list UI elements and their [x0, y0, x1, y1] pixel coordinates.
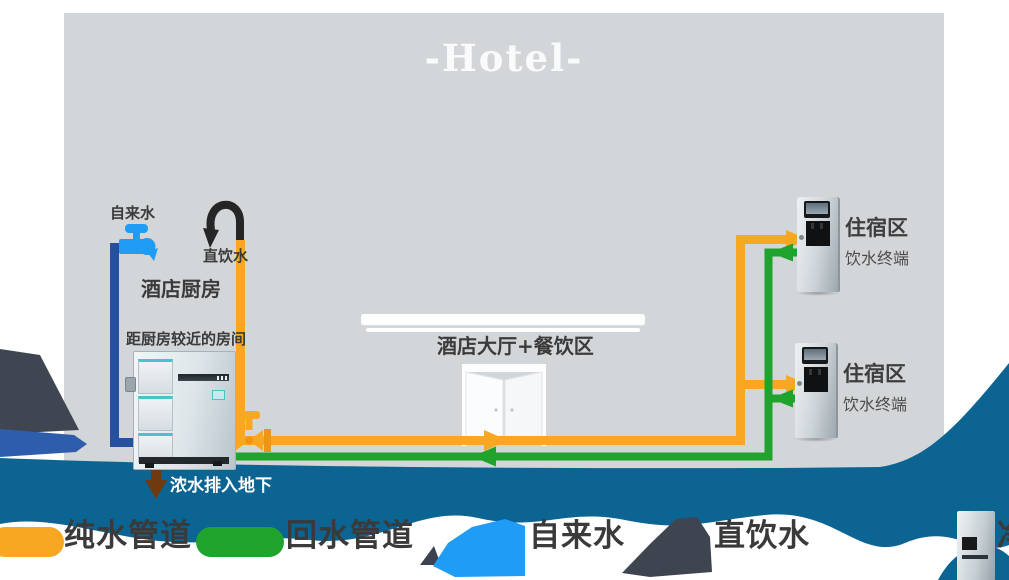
dispenser-screen — [802, 347, 828, 364]
lobby-door — [462, 364, 546, 446]
legend-return-water-line — [196, 527, 284, 557]
machine-foot — [145, 463, 154, 468]
legend-dark-faucet-icon — [622, 517, 712, 577]
direct-water-label: 直饮水 — [203, 248, 248, 265]
machine-panel — [138, 359, 173, 394]
legend-machine-screen — [962, 537, 977, 550]
lobby-label: 酒店大厅+餐饮区 — [437, 335, 594, 358]
legend-blue-faucet-icon — [420, 519, 525, 577]
near-room-label: 距厨房较近的房间 — [126, 331, 246, 348]
legend-purifier-machine-icon — [957, 511, 995, 580]
dispenser-spout — [820, 223, 823, 229]
legend-label-return-water: 回水管道 — [286, 521, 414, 552]
kitchen-label: 酒店厨房 — [141, 278, 221, 301]
dispenser-alcove — [806, 221, 830, 246]
machine-indicator-light — [221, 376, 223, 380]
dispenser-area-label: 住宿区 饮水终端 — [843, 358, 963, 415]
tap-faucet-icon — [119, 224, 158, 261]
water-dispenser — [797, 197, 838, 292]
terminal-name: 饮水终端 — [845, 245, 965, 269]
legend-label-pure-water: 纯水管道 — [64, 521, 192, 552]
machine-inlet-connector — [125, 377, 136, 392]
water-purifier-machine — [133, 351, 234, 468]
tap-water-label: 自来水 — [110, 205, 155, 222]
dispenser-screen — [804, 201, 830, 218]
legend-label-direct-water: 直饮水 — [714, 521, 810, 552]
water-dispenser — [795, 343, 836, 438]
area-name: 住宿区 — [845, 212, 965, 242]
dispenser-spout — [809, 369, 812, 375]
legend-label-tap-water: 自来水 — [529, 521, 625, 552]
dispenser-spout — [811, 223, 814, 229]
dispenser-alcove — [804, 367, 828, 392]
legend-label-purifier: 净水设备 — [997, 521, 1009, 552]
left-slate-wedge — [0, 349, 79, 434]
gooseneck-faucet-icon — [203, 205, 240, 248]
dispenser-area-label: 住宿区 饮水终端 — [845, 212, 965, 269]
dispenser-spout — [818, 369, 821, 375]
machine-indicator-light — [217, 376, 219, 380]
machine-foot — [213, 461, 222, 466]
drain-label: 浓水排入地下 — [170, 477, 272, 497]
hotel-water-system-diagram: -Hotel- — [0, 0, 1009, 580]
dispenser-button — [799, 235, 804, 240]
dispenser-button — [797, 381, 802, 386]
area-name: 住宿区 — [843, 358, 963, 388]
left-blue-ribbon — [0, 429, 87, 457]
legend-pure-water-line — [0, 527, 64, 557]
machine-label-sticker — [212, 390, 225, 400]
machine-panel — [138, 396, 173, 431]
legend-machine-stripe — [962, 555, 988, 559]
terminal-name: 饮水终端 — [843, 391, 963, 415]
machine-indicator-light — [225, 376, 227, 380]
